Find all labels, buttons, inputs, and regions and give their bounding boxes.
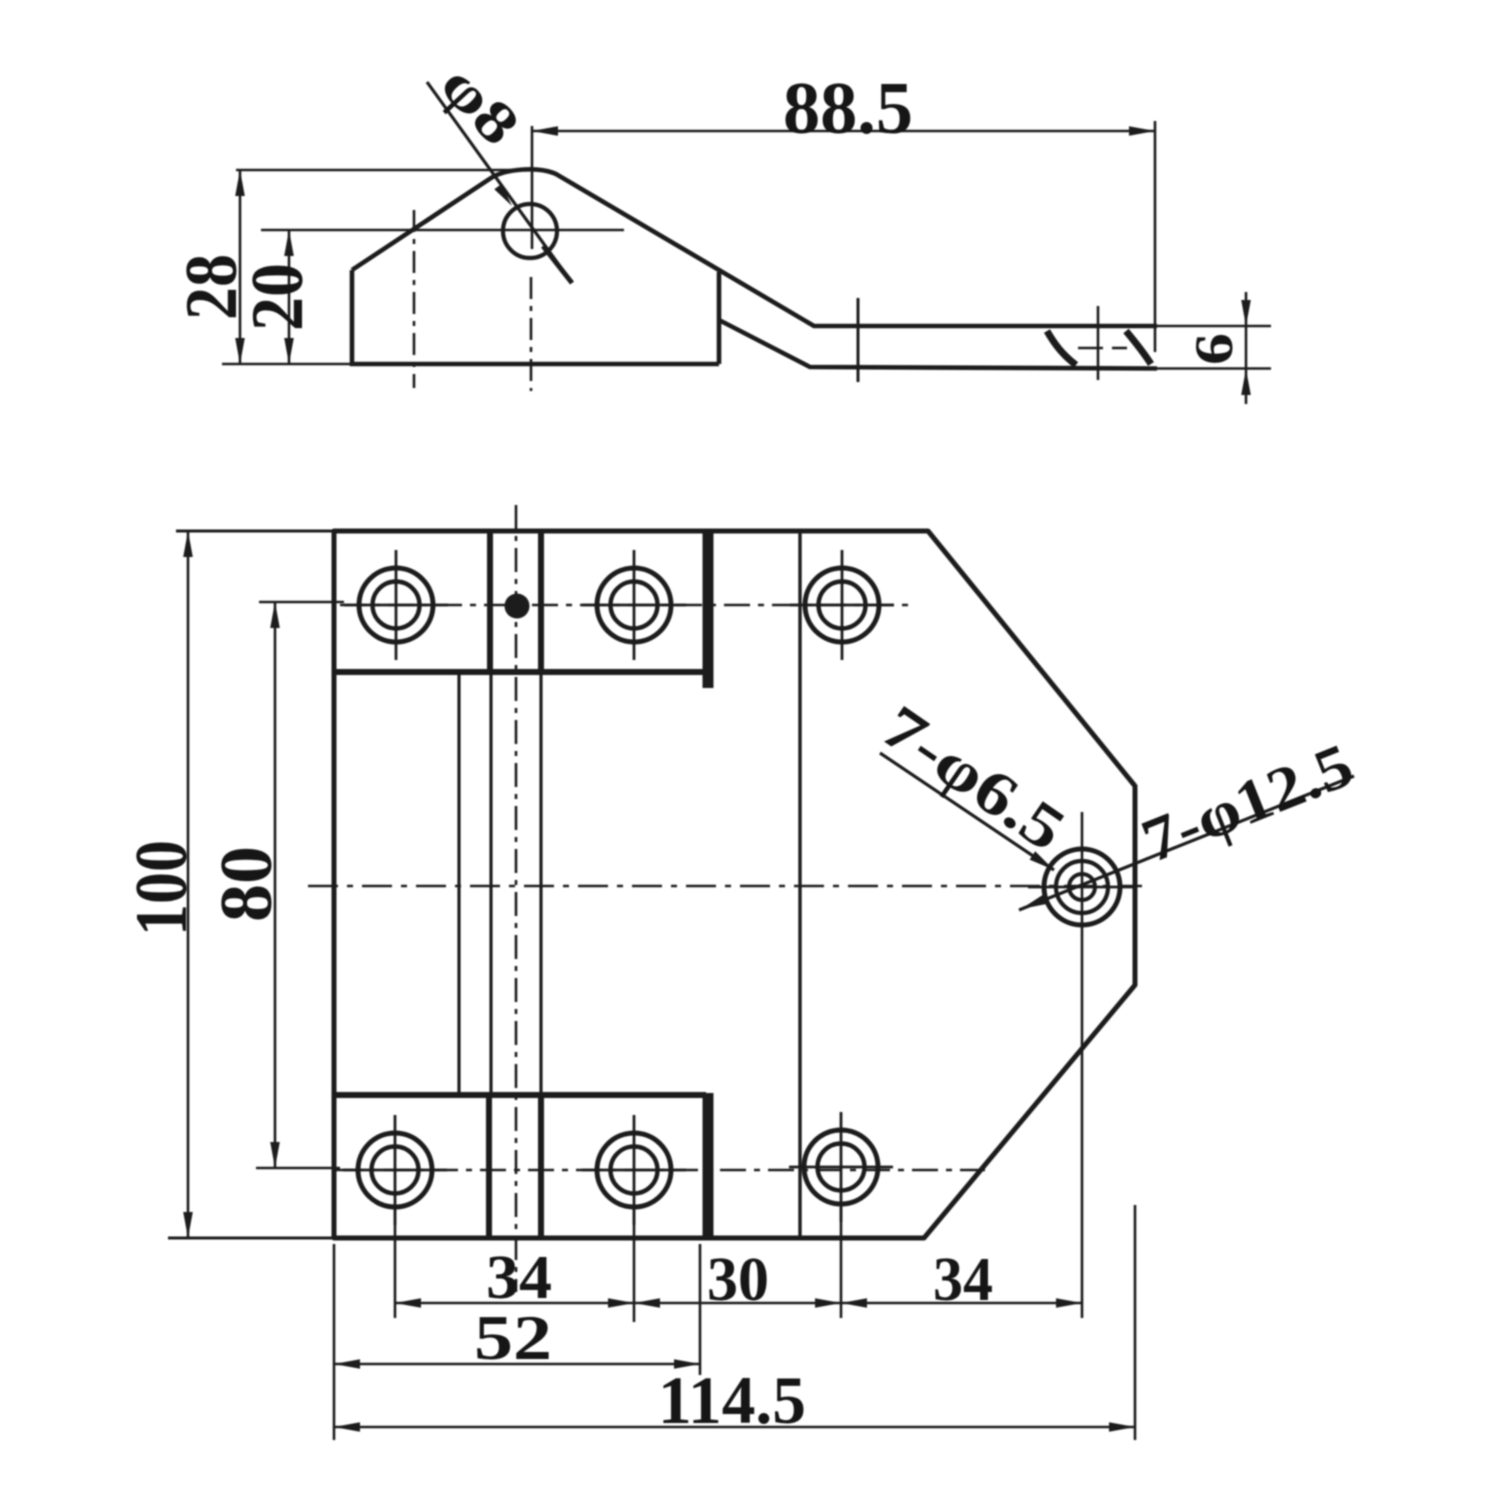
svg-text:100: 100: [121, 840, 203, 936]
svg-text:34: 34: [933, 1246, 993, 1314]
svg-text:6: 6: [1184, 333, 1244, 365]
svg-text:52: 52: [474, 1302, 552, 1373]
svg-text:20: 20: [237, 263, 319, 331]
svg-text:88.5: 88.5: [783, 68, 913, 150]
svg-text:114.5: 114.5: [658, 1362, 806, 1438]
svg-text:30: 30: [707, 1246, 769, 1314]
svg-text:80: 80: [206, 846, 288, 922]
